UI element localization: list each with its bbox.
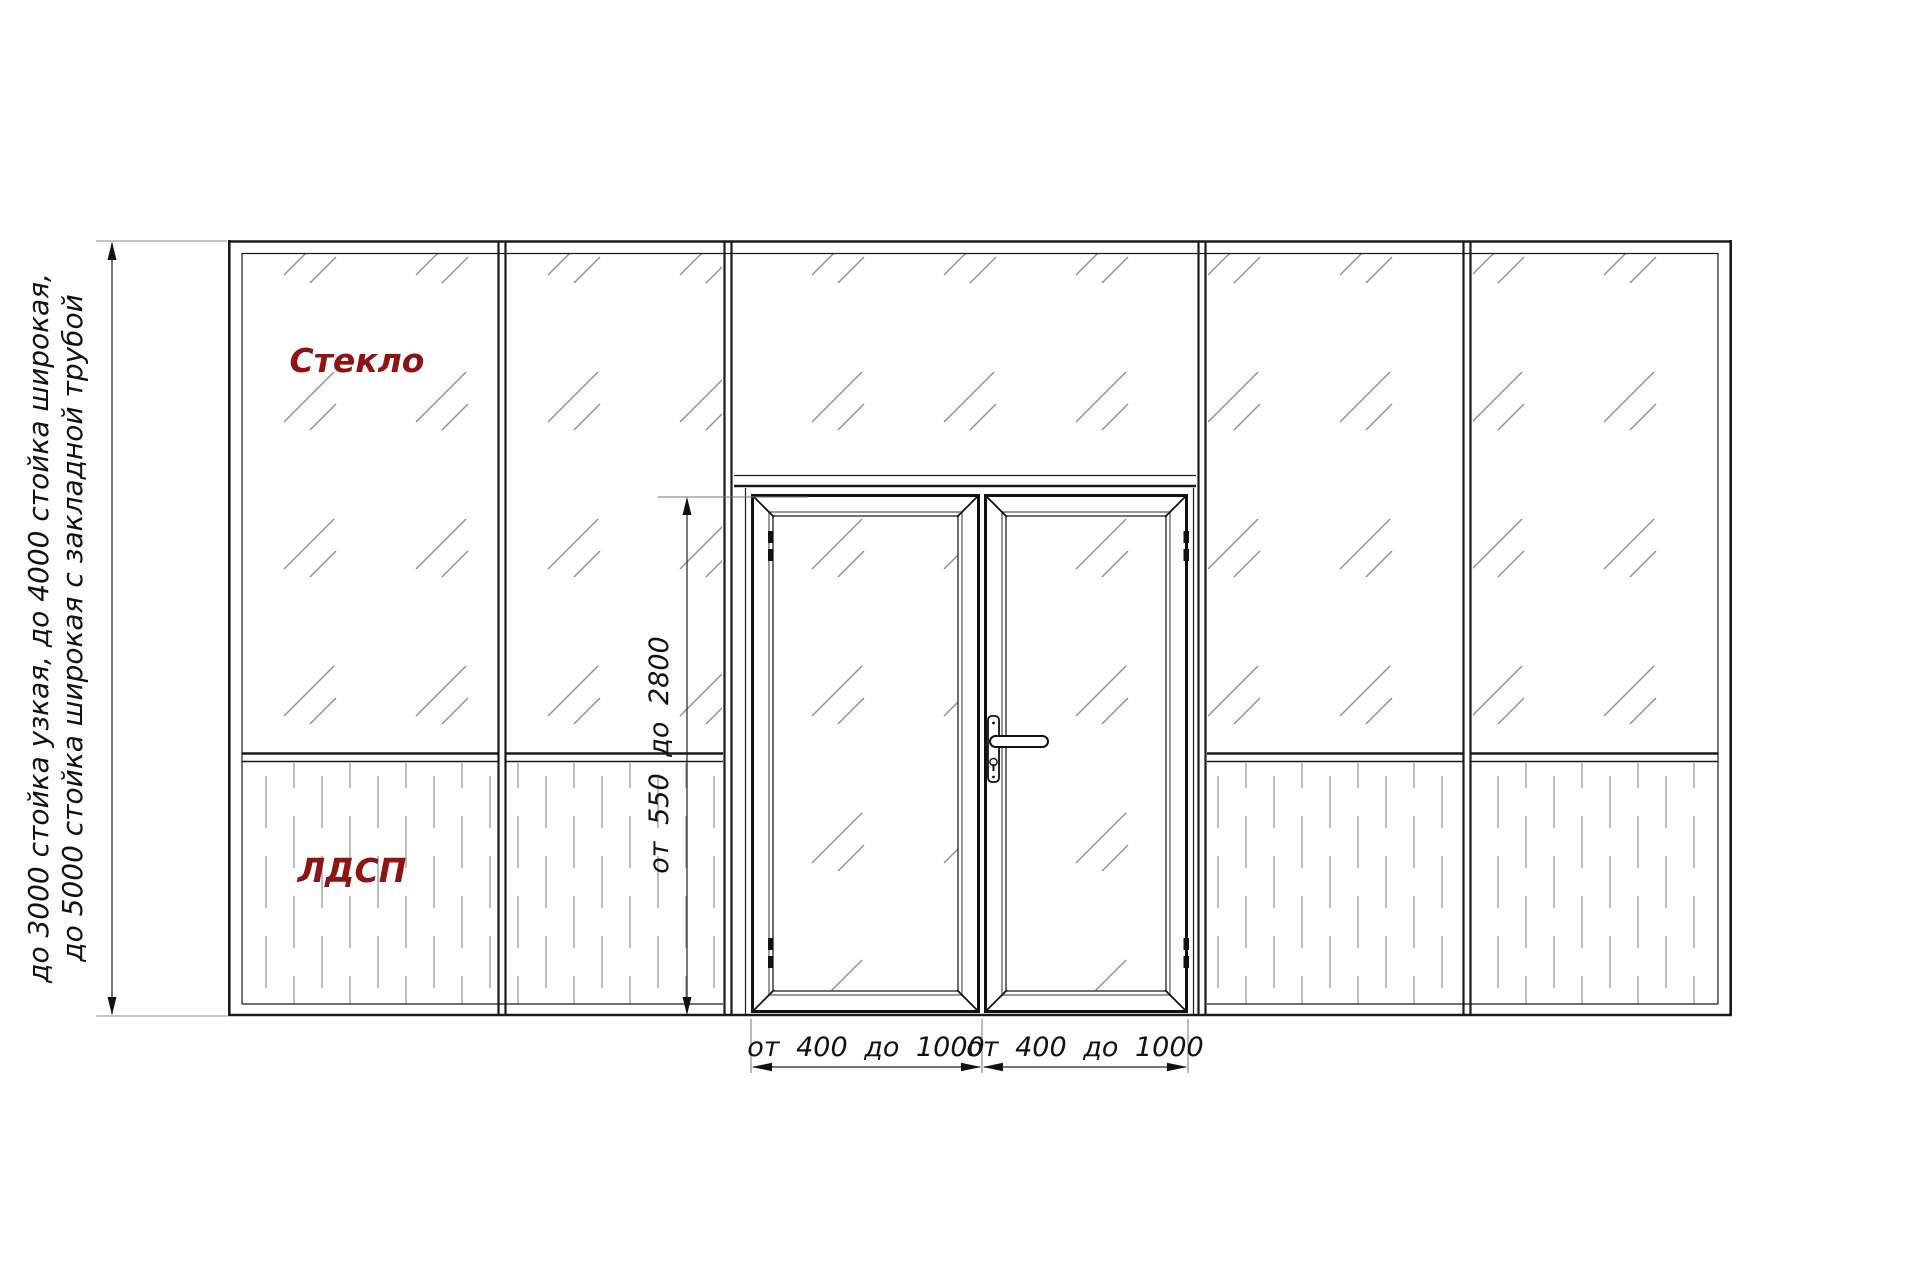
- ldsp-material-label: ЛДСП: [297, 851, 407, 890]
- ldsp-panel-3: [1208, 763, 1461, 1004]
- mullion-1: [498, 242, 506, 1015]
- door-leaf-left: [753, 496, 979, 1012]
- door-leaf-right: [986, 496, 1190, 1012]
- mullion-door-left: [724, 242, 732, 1015]
- partition-elevation-drawing: от 550 до 2800 от 400 до 1000 от 400 до …: [0, 0, 1920, 1262]
- glass-transom: [734, 254, 1196, 475]
- glass-panel-4: [1473, 254, 1717, 752]
- annotation-line-1: до 3000 стойка узкая, до 4000 стойка шир…: [22, 273, 55, 984]
- annotation-line-2: до 5000 стойка широкая с закладной трубо…: [56, 294, 89, 963]
- double-door: [746, 488, 1194, 1014]
- mullion-door-right: [1198, 242, 1206, 1015]
- mullion-2: [1463, 242, 1471, 1015]
- door-height-dim-label: от 550 до 2800: [644, 636, 675, 873]
- handle-lever: [990, 736, 1048, 747]
- door-width-left-dim-label: от 400 до 1000: [747, 1032, 984, 1063]
- ldsp-panel-2: [508, 763, 722, 1004]
- glass-material-label: Стекло: [290, 341, 425, 380]
- ldsp-panel-4: [1473, 763, 1717, 1004]
- annotation-post-types: до 3000 стойка узкая, до 4000 стойка шир…: [22, 273, 89, 984]
- glass-panel-2: [508, 254, 722, 752]
- door-width-right-dim-label: от 400 до 1000: [966, 1032, 1203, 1063]
- glass-panel-1: [243, 254, 496, 752]
- glass-panel-3: [1208, 254, 1461, 752]
